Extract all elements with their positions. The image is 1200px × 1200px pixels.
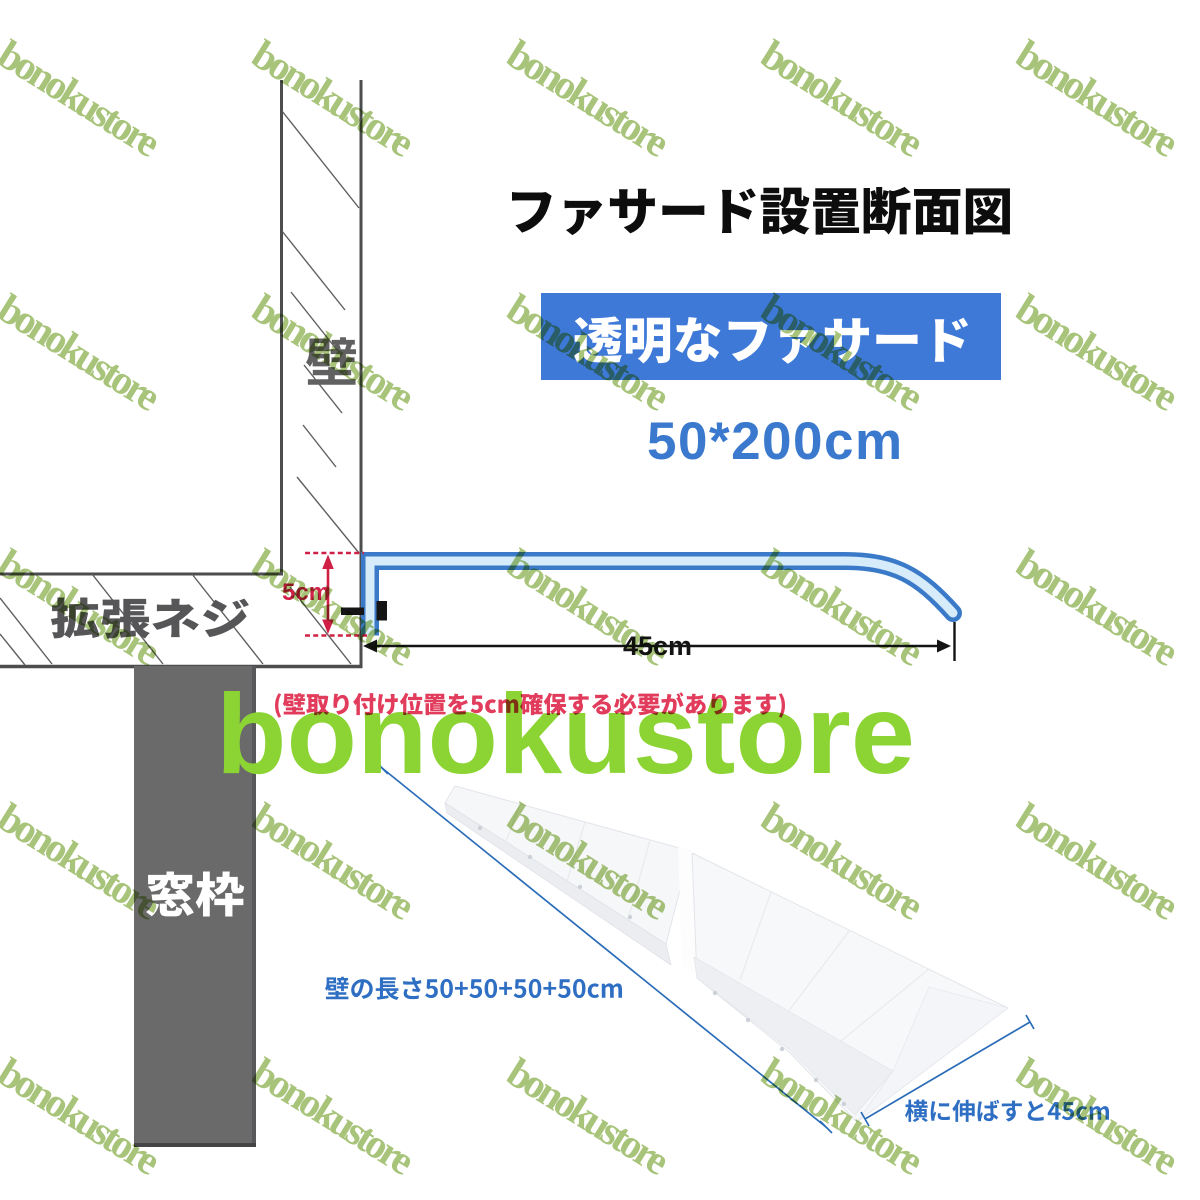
svg-text:bonokustore: bonokustore xyxy=(216,671,915,797)
svg-text:50*200cm: 50*200cm xyxy=(647,412,904,471)
